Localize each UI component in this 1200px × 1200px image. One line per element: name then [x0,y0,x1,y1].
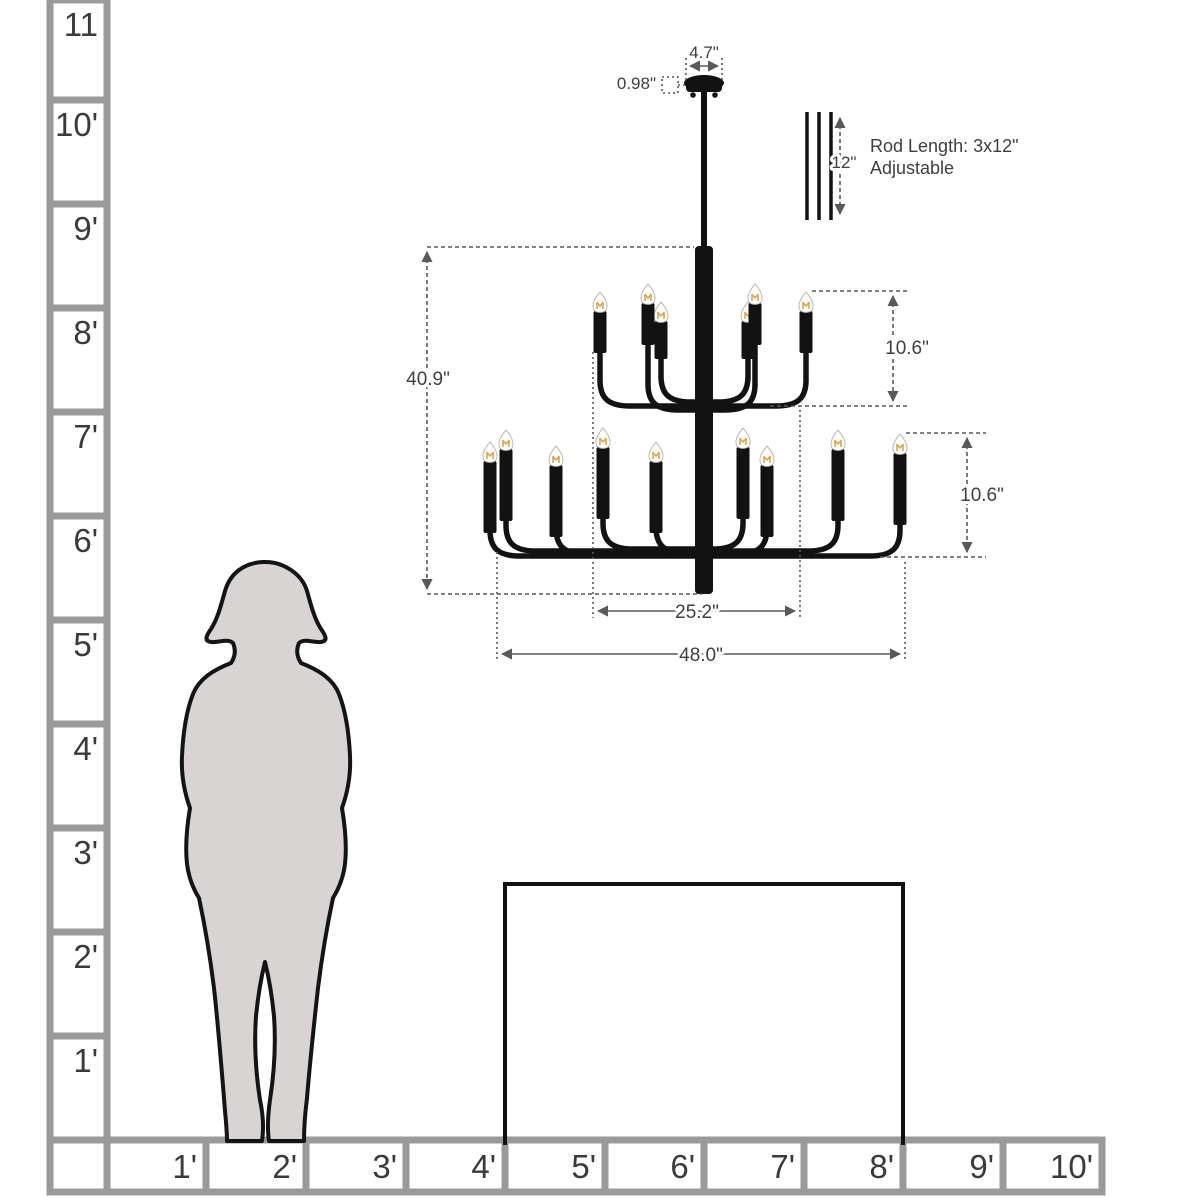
bulb [799,292,813,312]
horizontal-ruler: 1' 2' 3' 4' 5' 6' 7' 8' 9' 10' [50,1140,1102,1192]
bulb [641,284,655,304]
ruler-label: 5' [73,626,98,663]
bulb [483,442,497,462]
canopy-screw [712,92,718,98]
candle-socket [484,461,497,533]
candle-socket [761,465,774,537]
canopy-height-label: 0.98" [617,74,656,93]
candle-socket [894,453,907,525]
rod-note-line1: Rod Length: 3x12" [870,136,1019,156]
bulb [649,442,663,462]
candle-socket [642,303,655,345]
rod-kit-inset: 12" Rod Length: 3x12" Adjustable [807,112,1019,220]
bulb [748,284,762,304]
candle-socket [800,311,813,353]
upper-tier-width-label: 25.2" [675,602,719,623]
bulb [831,430,845,450]
bulb [760,446,774,466]
ruler-label: 2' [73,938,98,975]
candle-socket [832,449,845,521]
candle-socket [737,447,750,519]
canopy-width-label: 4.7" [689,43,719,62]
ruler-label: 10' [55,106,98,143]
ruler-label: 1' [73,1042,98,1079]
bulb [736,428,750,448]
bulb [654,302,668,322]
ruler-label: 6' [670,1148,695,1185]
rod-note-line2: Adjustable [870,158,954,178]
ruler-label: 4' [471,1148,496,1185]
diagram-svg: 11 10' 9' 8' 7' 6' 5' 4' 3' 2' 1' 1' 2' … [0,0,1200,1200]
table-outline [505,884,903,1143]
canopy-disc [684,75,724,91]
candle-socket [749,303,762,345]
ruler-label: 3' [372,1148,397,1185]
ruler-label: 6' [73,522,98,559]
overall-height-label: 40.9" [406,369,450,390]
ruler-label: 4' [73,730,98,767]
overall-width-label: 48.0" [679,645,723,666]
candle-socket [655,321,668,359]
ruler-label: 8' [73,314,98,351]
canopy-height-box [662,77,678,93]
ruler-label: 5' [571,1148,596,1185]
scale-diagram-canvas: 11 10' 9' 8' 7' 6' 5' 4' 3' 2' 1' 1' 2' … [0,0,1200,1200]
upper-tier-height-label: 10.6" [885,338,929,359]
human-silhouette [182,562,350,1141]
ruler-label: 3' [73,834,98,871]
canopy-screw [690,92,696,98]
ruler-label: 2' [272,1148,297,1185]
bulb [893,434,907,454]
ruler-label: 9' [73,210,98,247]
chandelier-column [695,246,713,594]
bulb [596,428,610,448]
rod-length-dim-label: 12" [832,153,857,172]
bulb [499,430,513,450]
bulb [593,292,607,312]
candle-socket [594,311,607,353]
lower-tier-height-label: 10.6" [960,485,1004,506]
candle-socket [550,465,563,537]
candle-socket [500,449,513,521]
candle-socket [650,461,663,533]
ruler-label: 10' [1050,1148,1093,1185]
ruler-label: 1' [172,1148,197,1185]
ruler-label: 11 [64,6,98,43]
ruler-label: 9' [969,1148,994,1185]
vertical-ruler: 11 10' 9' 8' 7' 6' 5' 4' 3' 2' 1' [50,0,107,1140]
ruler-corner-cell [50,1140,107,1192]
bulb [549,446,563,466]
ruler-label: 7' [73,418,98,455]
ruler-label: 8' [869,1148,894,1185]
hanging-rod [701,92,707,248]
candle-socket [597,447,610,519]
ruler-label: 7' [770,1148,795,1185]
